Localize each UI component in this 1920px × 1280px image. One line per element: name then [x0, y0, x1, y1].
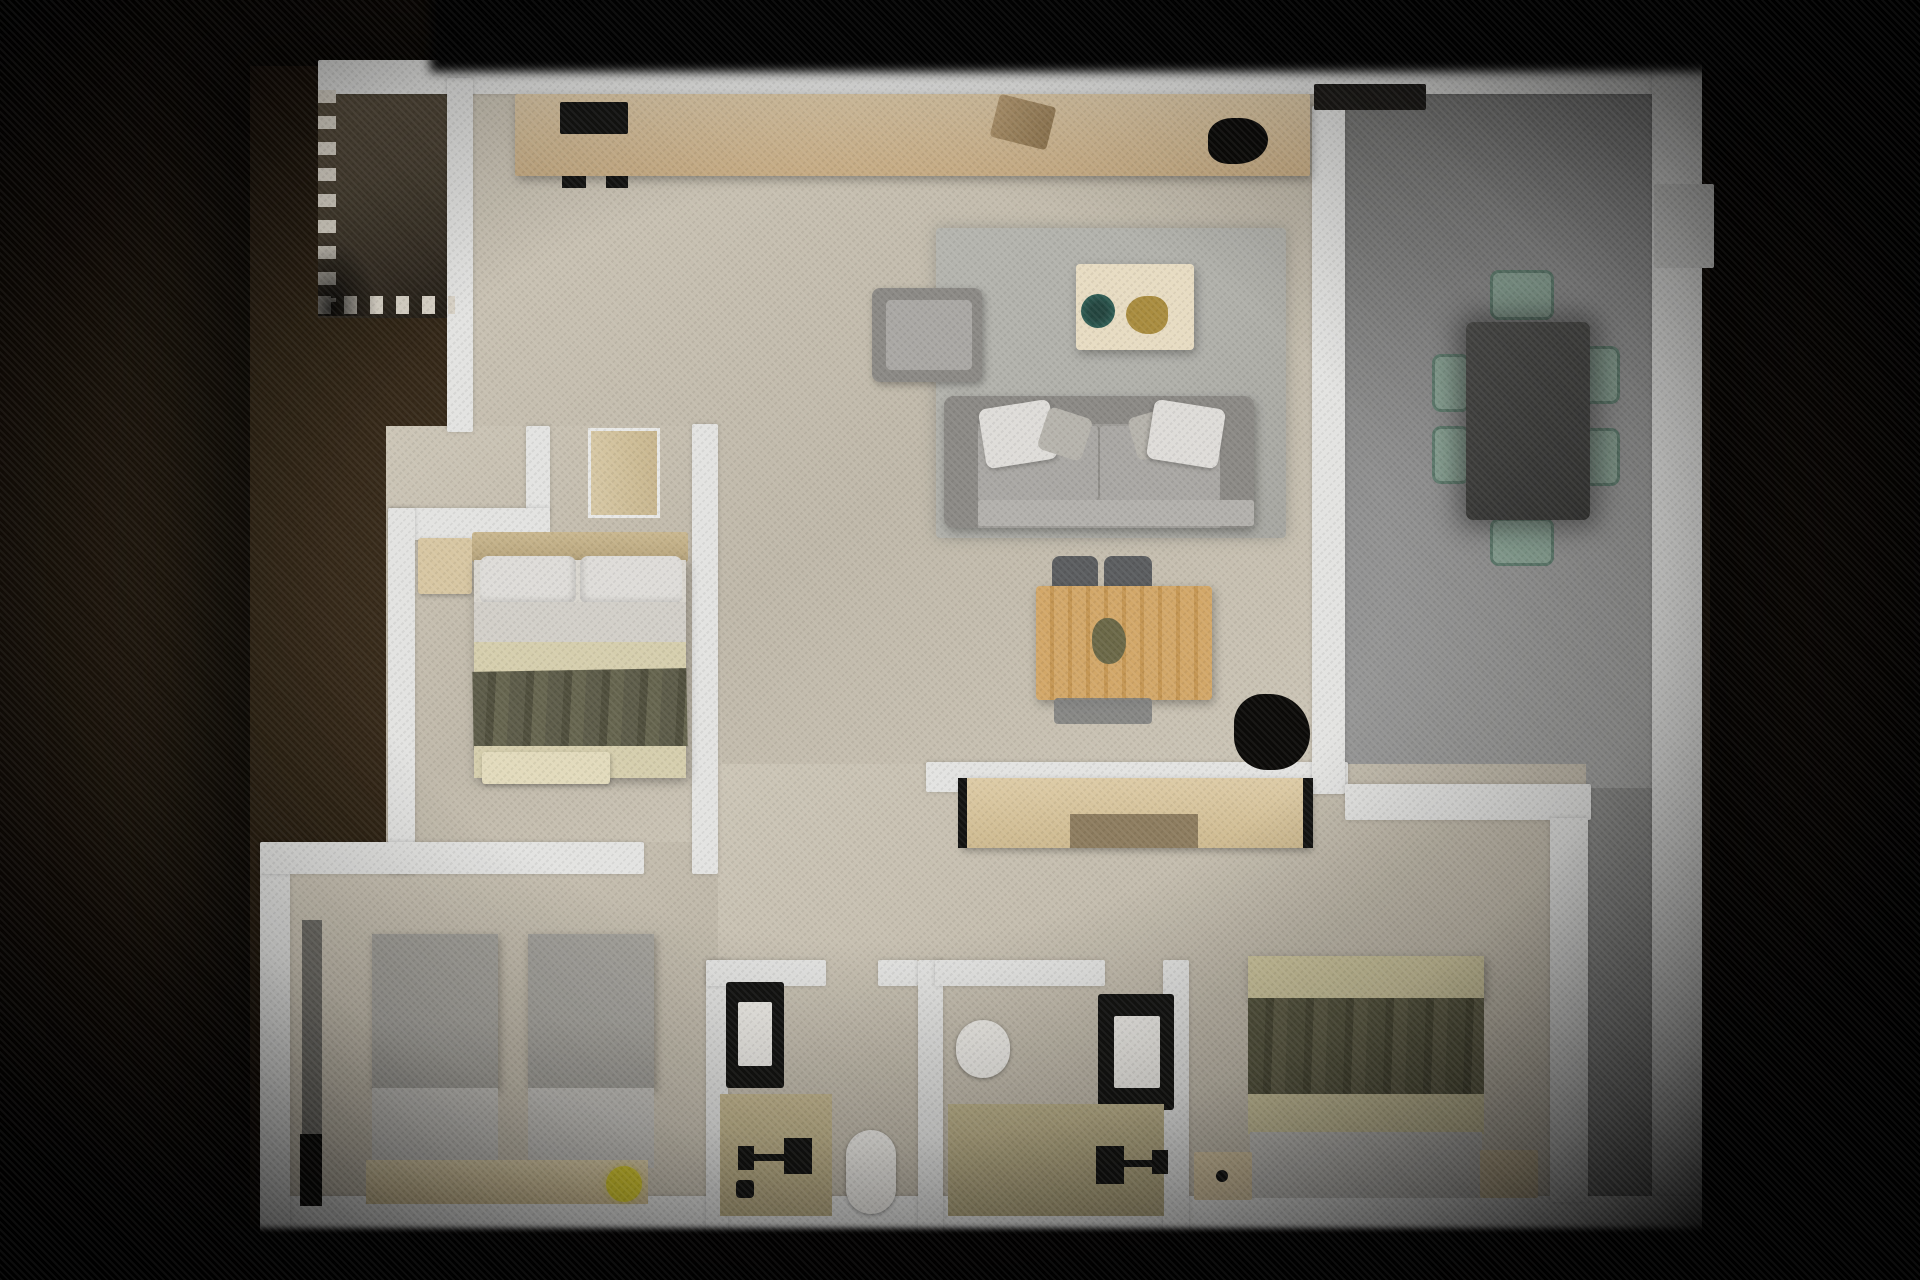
wall-balcony-living [447, 78, 473, 432]
gold-decor [1126, 296, 1168, 334]
master-nightstand [418, 538, 472, 594]
wall-master-right [692, 424, 718, 874]
master-olive-throw [472, 668, 687, 750]
cooktop [560, 102, 628, 134]
balcony-shadow [318, 236, 378, 316]
wall-left-lower [260, 842, 290, 1232]
kitchen-counter [515, 94, 1310, 176]
twin-bed-left-sheet [372, 1088, 498, 1168]
wall-entry-stub [526, 426, 550, 514]
sofa-pillow-white-right [1146, 399, 1226, 470]
terrace-floor [1584, 788, 1660, 1234]
window-tab [1654, 184, 1714, 268]
bath1-drain-dot [736, 1180, 754, 1198]
yellow-stool [606, 1166, 642, 1202]
floor-plan-render [0, 0, 1920, 1280]
twin-bed-left-blanket [372, 934, 498, 1090]
dining-chair-north [1490, 270, 1554, 320]
kitchen-pass-shadow [1314, 84, 1426, 110]
master-cream-band [474, 642, 686, 672]
sofa-front-band [978, 500, 1254, 526]
wall-master-left [388, 508, 415, 874]
living-floor-plant [1234, 694, 1310, 770]
bedroom3-bed-foot [1250, 1132, 1482, 1198]
armchair-seat [886, 300, 972, 370]
bedroom3-sideboard-cap-left [958, 778, 967, 848]
master-foot-bench [482, 752, 610, 784]
bath2-faucet-nub [1152, 1150, 1168, 1174]
counter-mark-right [606, 176, 628, 188]
bedroom3-bed-pillows [1248, 956, 1484, 1000]
twin-door-dark [300, 1134, 322, 1206]
sofa-arm-left [944, 396, 978, 528]
dining-table [1466, 322, 1590, 520]
bedroom3-nightstand-left-knob [1216, 1170, 1228, 1182]
bath1-shower-tray [738, 1002, 772, 1066]
bath1-toilet [846, 1130, 896, 1214]
wall-twin-top [260, 842, 644, 874]
twin-bed-right-blanket [528, 934, 654, 1090]
bedroom3-bed-khaki-band [1248, 1094, 1484, 1134]
wall-bath1-top-post [878, 960, 918, 986]
master-sheet-band [474, 602, 686, 644]
dining-chair-west-2 [1432, 426, 1470, 484]
twin-wardrobe-strip [302, 920, 322, 1138]
breakfast-chair-bottom [1054, 698, 1152, 724]
dining-chair-south [1490, 518, 1554, 566]
master-pillow-left [480, 556, 576, 604]
wall-dining-south [1345, 784, 1591, 820]
wall-bath2-top [935, 960, 1105, 986]
bedroom3-nightstand-right [1480, 1150, 1538, 1198]
bath2-shower-tray [1114, 1016, 1160, 1088]
teal-dish [1081, 294, 1115, 328]
bath2-toilet [956, 1020, 1010, 1078]
dining-chair-west-1 [1432, 354, 1470, 412]
bedroom3-sideboard-dark [1070, 814, 1198, 848]
wall-bathrooms-mid [918, 960, 943, 1234]
bath1-faucet-head [784, 1138, 812, 1174]
bottom-black-band [0, 1228, 1920, 1280]
bath1-faucet-line [748, 1154, 788, 1161]
bedroom3-bed-olive-throw [1248, 998, 1484, 1096]
twin-bed-right-sheet [528, 1088, 654, 1168]
wall-bedroom3-terrace [1550, 818, 1588, 1202]
top-black-band [430, 0, 1920, 72]
bath2-faucet-head [1096, 1146, 1124, 1184]
wall-dining-left [1312, 106, 1345, 794]
master-wardrobe [588, 428, 660, 518]
bedroom3-sideboard-cap-right [1303, 778, 1313, 848]
counter-mark-left [562, 176, 586, 188]
breakfast-table-decor [1092, 618, 1126, 664]
master-pillow-right [580, 556, 682, 604]
